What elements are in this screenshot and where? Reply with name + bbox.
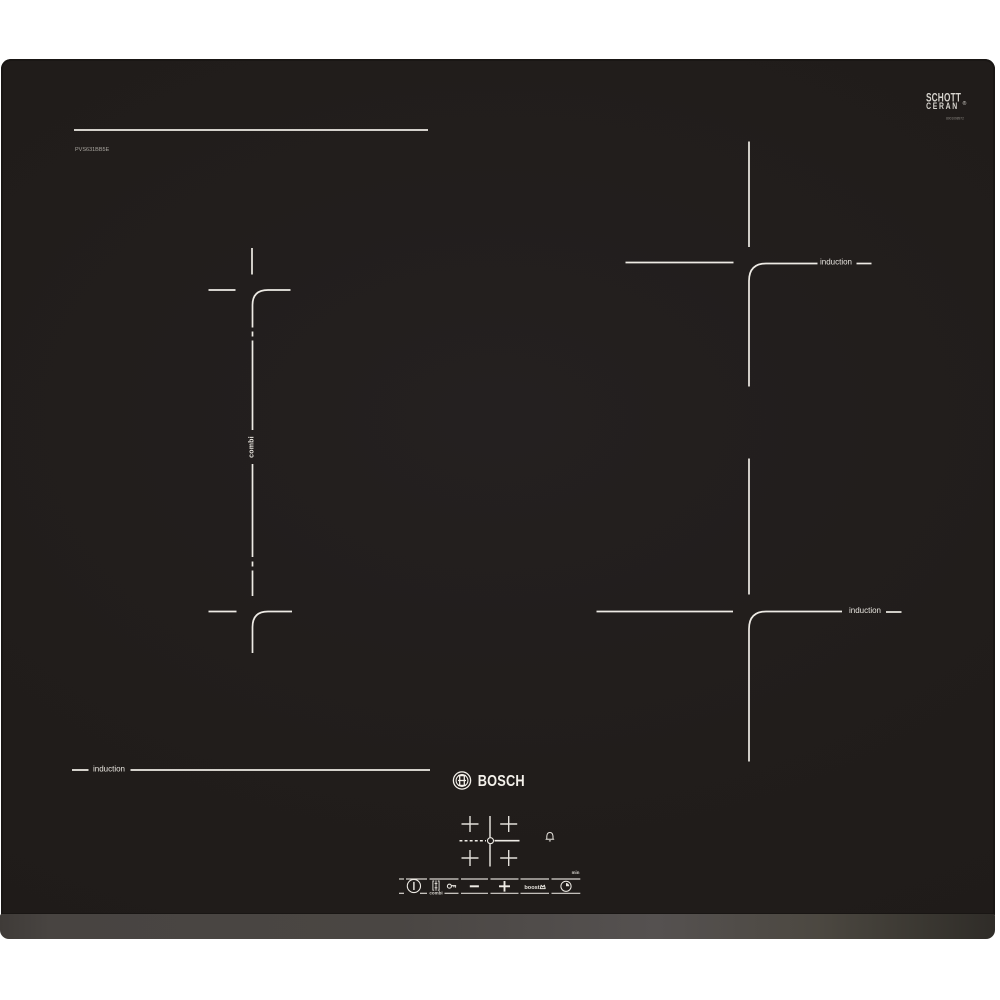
svg-text:induction: induction [849, 606, 881, 615]
svg-text:PVS631BB5E: PVS631BB5E [75, 147, 110, 153]
svg-text:combi: combi [429, 891, 442, 896]
svg-text:BOSCH: BOSCH [478, 773, 525, 790]
svg-text:induction: induction [93, 765, 125, 774]
svg-text:combi: combi [249, 436, 256, 458]
svg-text:8001098972: 8001098972 [946, 117, 964, 121]
svg-text:boost: boost [524, 885, 539, 891]
svg-text:®: ® [963, 100, 967, 107]
svg-text:min: min [572, 870, 580, 875]
svg-text:induction: induction [820, 258, 852, 267]
svg-text:CERAN: CERAN [926, 101, 959, 111]
